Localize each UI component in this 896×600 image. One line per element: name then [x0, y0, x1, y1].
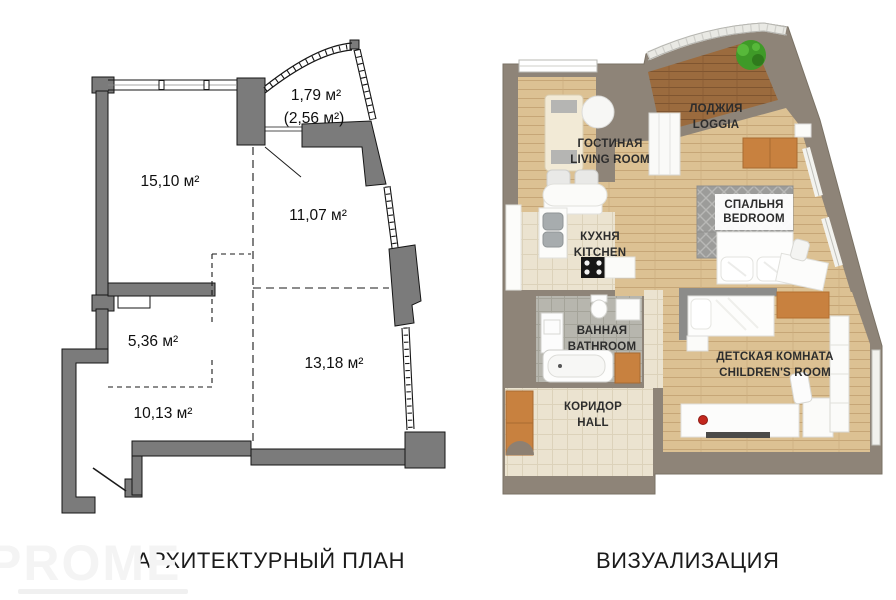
label-children-en: CHILDREN'S ROOM	[719, 367, 831, 379]
area-loggia-total: (2,56 м²)	[284, 110, 345, 127]
floor-corridor	[644, 290, 663, 388]
tv-strip	[706, 432, 770, 438]
label-living-ru: ГОСТИНАЯ	[577, 138, 642, 150]
watermark-subline	[18, 589, 188, 594]
kitchen-counter	[506, 205, 521, 290]
label-bedroom-ru: СПАЛЬНЯ	[724, 199, 783, 211]
nightstand	[795, 124, 811, 137]
plan-walls	[62, 40, 445, 513]
plan-shaft	[118, 296, 150, 308]
label-kitchen-en: KITCHEN	[574, 247, 627, 259]
floorplan-poster: 1,79 м² (2,56 м²) 15,10 м² 11,07 м² 5,36…	[0, 0, 896, 600]
area-loggia: 1,79 м²	[291, 87, 341, 104]
child-rug-orange	[777, 292, 829, 318]
area-hall: 10,13 м²	[134, 405, 193, 422]
area-bedroom: 11,07 м²	[289, 207, 347, 224]
sofa-pillow	[551, 100, 577, 113]
plan-balcony-glazing	[265, 43, 376, 120]
plant-icon	[736, 40, 766, 70]
viz-hall	[506, 391, 534, 455]
area-living-room: 15,10 м²	[141, 173, 200, 190]
label-bedroom-en: BEDROOM	[723, 213, 784, 225]
child-bed-frame	[679, 288, 688, 340]
bed-blanket-side	[697, 232, 717, 258]
toilet	[591, 300, 607, 318]
architectural-plan-panel: 1,79 м² (2,56 м²) 15,10 м² 11,07 м² 5,36…	[0, 0, 448, 520]
visualization-drawing: ЛОДЖИЯ LOGGIA ГОСТИНАЯ LIVING ROOM СПАЛЬ…	[448, 0, 896, 520]
architectural-plan-drawing: 1,79 м² (2,56 м²) 15,10 м² 11,07 м² 5,36…	[0, 0, 448, 520]
wardrobe-unit	[649, 113, 680, 175]
area-kitchen: 5,36 м²	[128, 333, 178, 350]
stove	[581, 257, 605, 278]
child-cabinet	[803, 398, 833, 437]
bathroom-cabinet-orange	[615, 353, 640, 383]
label-living-en: LIVING ROOM	[570, 154, 650, 166]
label-hall-ru: КОРИДОР	[564, 401, 622, 413]
watermark: PROME	[0, 534, 181, 592]
label-bathroom-en: BATHROOM	[568, 341, 636, 353]
label-children-ru: ДЕТСКАЯ КОМНАТА	[716, 351, 833, 363]
bath-cabinet	[616, 299, 640, 320]
label-hall-en: HALL	[577, 417, 608, 429]
label-loggia-ru: ЛОДЖИЯ	[689, 103, 742, 115]
label-loggia-en: LOGGIA	[693, 119, 740, 131]
child-nightstand	[687, 336, 708, 351]
kitchen-counter-right	[605, 257, 635, 278]
label-kitchen-ru: КУХНЯ	[580, 231, 620, 243]
sink-bowl	[543, 213, 563, 230]
bar-counter	[543, 184, 607, 206]
round-table	[582, 96, 614, 128]
visualization-panel: ЛОДЖИЯ LOGGIA ГОСТИНАЯ LIVING ROOM СПАЛЬ…	[448, 0, 896, 520]
caption-visualization: ВИЗУАЛИЗАЦИЯ	[596, 548, 779, 574]
child-pillow	[691, 299, 711, 329]
red-dot	[699, 416, 708, 425]
child-bed-frame	[679, 288, 777, 296]
area-children-room: 13,18 м²	[305, 355, 364, 372]
plan-top-window	[108, 80, 237, 90]
plan-door-leaves	[93, 147, 301, 491]
sink-bowl	[543, 232, 563, 247]
label-bathroom-ru: ВАННАЯ	[577, 325, 627, 337]
